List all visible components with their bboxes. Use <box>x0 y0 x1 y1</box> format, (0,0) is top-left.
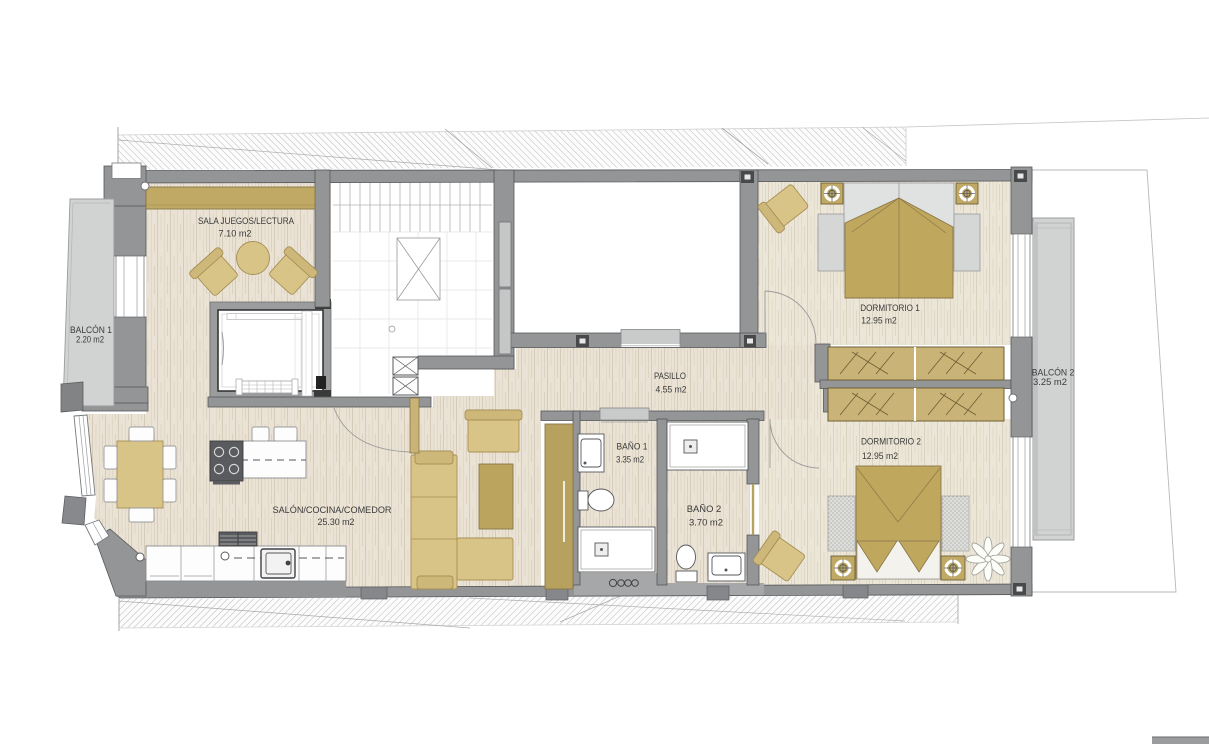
svg-text:3.25 m2: 3.25 m2 <box>1033 376 1067 387</box>
svg-text:7.10 m2: 7.10 m2 <box>219 228 252 239</box>
svg-text:3.35 m2: 3.35 m2 <box>616 454 644 465</box>
svg-text:SALA JUEGOS/LECTURA: SALA JUEGOS/LECTURA <box>198 216 295 227</box>
svg-text:BAÑO 1: BAÑO 1 <box>617 442 648 453</box>
svg-text:PASILLO: PASILLO <box>654 371 686 382</box>
svg-text:12.95 m2: 12.95 m2 <box>862 450 898 461</box>
svg-text:4.55 m2: 4.55 m2 <box>656 384 687 395</box>
svg-text:3.70 m2: 3.70 m2 <box>689 517 723 528</box>
svg-text:25.30 m2: 25.30 m2 <box>318 516 355 527</box>
svg-text:DORMITORIO 1: DORMITORIO 1 <box>860 303 920 314</box>
svg-text:12.95 m2: 12.95 m2 <box>861 315 897 326</box>
svg-text:2.20 m2: 2.20 m2 <box>76 334 104 345</box>
svg-text:DORMITORIO 2: DORMITORIO 2 <box>861 437 921 448</box>
svg-text:BAÑO 2: BAÑO 2 <box>687 504 722 515</box>
svg-text:SALÓN/COCINA/COMEDOR: SALÓN/COCINA/COMEDOR <box>273 505 392 516</box>
